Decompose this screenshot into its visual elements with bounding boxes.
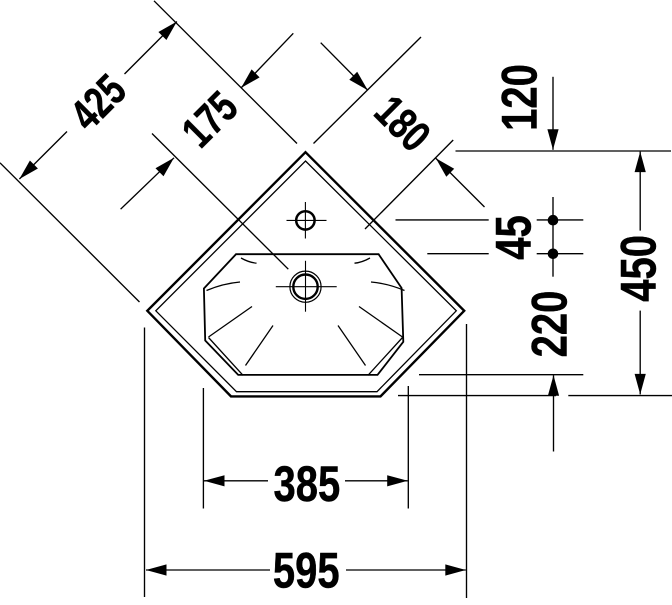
svg-text:45: 45 <box>485 215 541 259</box>
svg-text:120: 120 <box>491 64 547 131</box>
svg-text:595: 595 <box>273 542 340 598</box>
svg-text:220: 220 <box>521 291 577 358</box>
svg-text:385: 385 <box>274 456 341 512</box>
svg-text:450: 450 <box>610 235 666 302</box>
